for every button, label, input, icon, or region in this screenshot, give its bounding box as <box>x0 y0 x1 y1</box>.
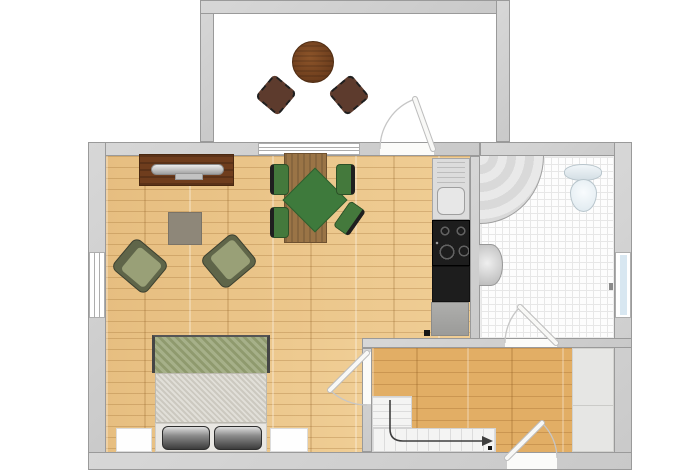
living-hall-door[interactable] <box>330 353 367 405</box>
door-swing-overlay <box>0 0 686 470</box>
entry-door[interactable] <box>507 423 557 458</box>
bathroom-door[interactable] <box>505 307 556 343</box>
balcony-door[interactable] <box>380 99 433 149</box>
stair-direction-arrow <box>390 400 493 446</box>
floor-plan <box>0 0 686 470</box>
